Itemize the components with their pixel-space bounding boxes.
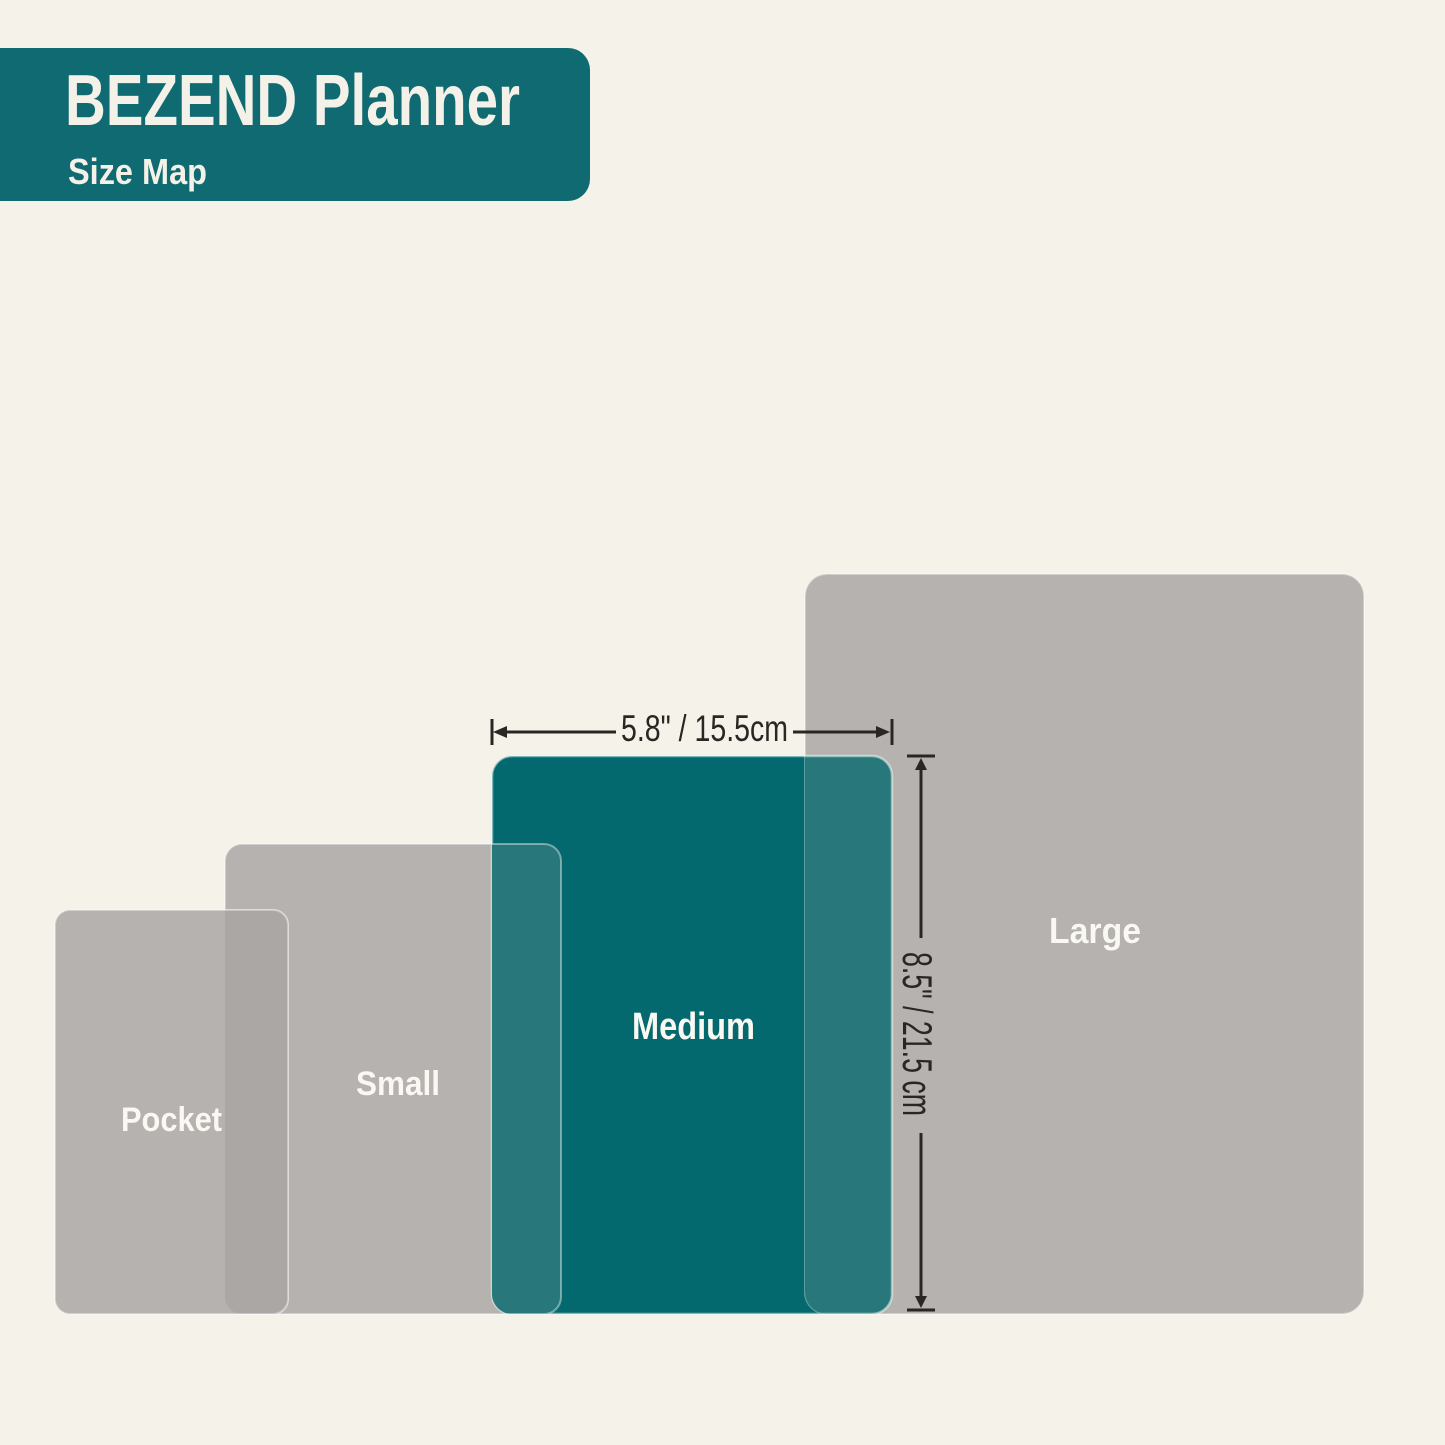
svg-text:Small: Small [356,1065,440,1103]
svg-text:Pocket: Pocket [121,1101,222,1139]
svg-text:5.8" / 15.5cm: 5.8" / 15.5cm [621,708,788,749]
svg-text:BEZEND Planner: BEZEND Planner [65,61,520,141]
svg-text:8.5" / 21.5 cm: 8.5" / 21.5 cm [894,952,941,1116]
svg-text:Medium: Medium [632,1006,755,1048]
svg-text:Large: Large [1049,910,1141,951]
svg-text:Size Map: Size Map [68,151,207,192]
